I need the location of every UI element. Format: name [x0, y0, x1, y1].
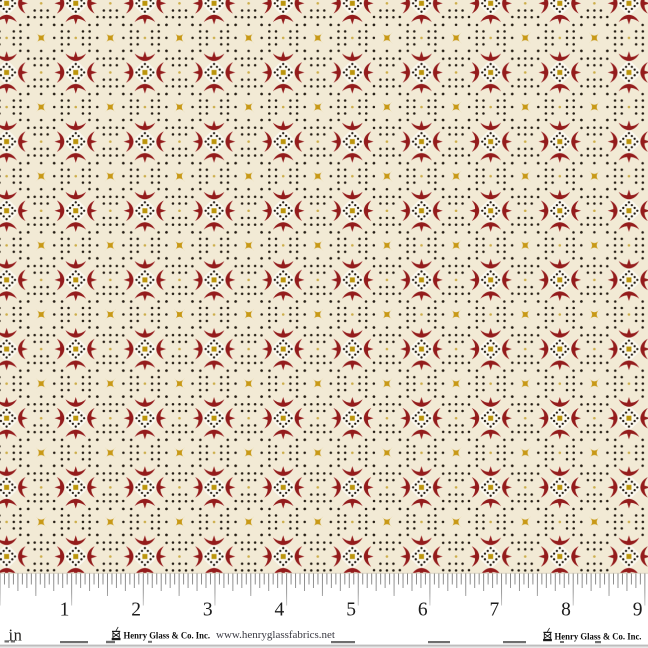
svg-text:9: 9 — [633, 599, 643, 620]
svg-text:1: 1 — [60, 599, 70, 620]
svg-text:7: 7 — [490, 599, 500, 620]
svg-text:www.henryglassfabrics.net: www.henryglassfabrics.net — [216, 629, 335, 641]
svg-text:3: 3 — [203, 599, 213, 620]
svg-text:Henry Glass & Co. Inc.: Henry Glass & Co. Inc. — [124, 632, 211, 642]
svg-text:6: 6 — [418, 599, 428, 620]
svg-text:2: 2 — [131, 599, 141, 620]
svg-text:4: 4 — [275, 599, 285, 620]
svg-text:5: 5 — [346, 599, 356, 620]
svg-text:in: in — [9, 626, 23, 645]
svg-text:8: 8 — [561, 599, 571, 620]
